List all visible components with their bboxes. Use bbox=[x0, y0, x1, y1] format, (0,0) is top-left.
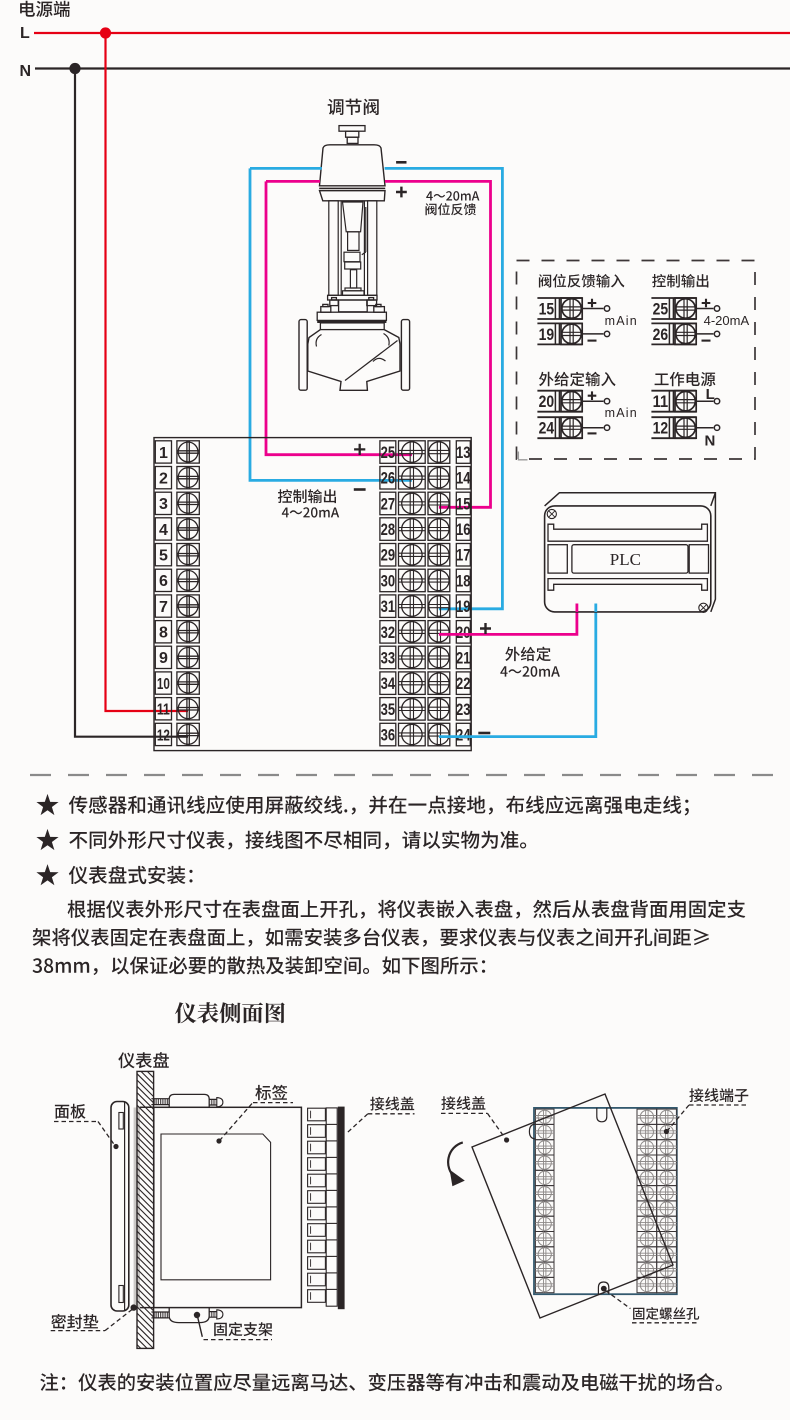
svg-text:24: 24 bbox=[539, 420, 555, 438]
svg-text:18: 18 bbox=[456, 572, 471, 590]
svg-text:11: 11 bbox=[653, 393, 669, 411]
svg-text:14: 14 bbox=[456, 470, 471, 488]
svg-text:L: L bbox=[706, 386, 715, 403]
svg-text:4-20mA: 4-20mA bbox=[704, 313, 750, 328]
svg-text:25: 25 bbox=[381, 444, 396, 462]
svg-text:11: 11 bbox=[157, 702, 170, 719]
svg-text:21: 21 bbox=[456, 649, 471, 667]
svg-text:19: 19 bbox=[539, 326, 555, 344]
svg-text:4: 4 bbox=[159, 522, 168, 539]
svg-text:L: L bbox=[20, 25, 30, 42]
svg-text:27: 27 bbox=[381, 495, 396, 513]
svg-text:5: 5 bbox=[159, 548, 168, 565]
svg-text:16: 16 bbox=[456, 521, 471, 539]
svg-text:N: N bbox=[20, 63, 32, 80]
svg-text:8: 8 bbox=[159, 625, 168, 642]
svg-text:28: 28 bbox=[381, 521, 396, 539]
svg-text:31: 31 bbox=[381, 598, 396, 616]
svg-text:17: 17 bbox=[456, 547, 471, 565]
svg-text:26: 26 bbox=[653, 326, 669, 344]
svg-text:19: 19 bbox=[456, 598, 471, 616]
svg-text:34: 34 bbox=[381, 675, 396, 693]
svg-text:20: 20 bbox=[539, 393, 555, 411]
svg-text:36: 36 bbox=[381, 727, 396, 745]
svg-text:23: 23 bbox=[456, 701, 471, 719]
svg-text:29: 29 bbox=[381, 547, 396, 565]
svg-text:32: 32 bbox=[381, 624, 396, 642]
svg-text:13: 13 bbox=[456, 444, 471, 462]
svg-text:25: 25 bbox=[653, 301, 669, 319]
svg-text:26: 26 bbox=[381, 470, 396, 488]
svg-text:35: 35 bbox=[381, 701, 396, 719]
svg-text:3: 3 bbox=[159, 496, 168, 513]
svg-text:mAin: mAin bbox=[605, 406, 638, 420]
svg-text:6: 6 bbox=[159, 573, 168, 590]
svg-text:7: 7 bbox=[159, 599, 168, 616]
svg-text:10: 10 bbox=[157, 676, 170, 693]
svg-text:9: 9 bbox=[159, 650, 168, 667]
svg-text:15: 15 bbox=[456, 495, 471, 513]
svg-text:2: 2 bbox=[159, 471, 168, 488]
svg-text:15: 15 bbox=[539, 301, 555, 319]
svg-text:12: 12 bbox=[653, 420, 669, 438]
svg-text:PLC: PLC bbox=[610, 550, 641, 569]
svg-text:22: 22 bbox=[456, 675, 471, 693]
svg-text:mAin: mAin bbox=[605, 314, 638, 328]
svg-text:12: 12 bbox=[157, 727, 170, 744]
svg-text:30: 30 bbox=[381, 572, 396, 590]
svg-text:N: N bbox=[705, 432, 716, 449]
svg-text:1: 1 bbox=[159, 445, 168, 462]
svg-text:20: 20 bbox=[456, 624, 471, 642]
svg-text:33: 33 bbox=[381, 649, 396, 667]
